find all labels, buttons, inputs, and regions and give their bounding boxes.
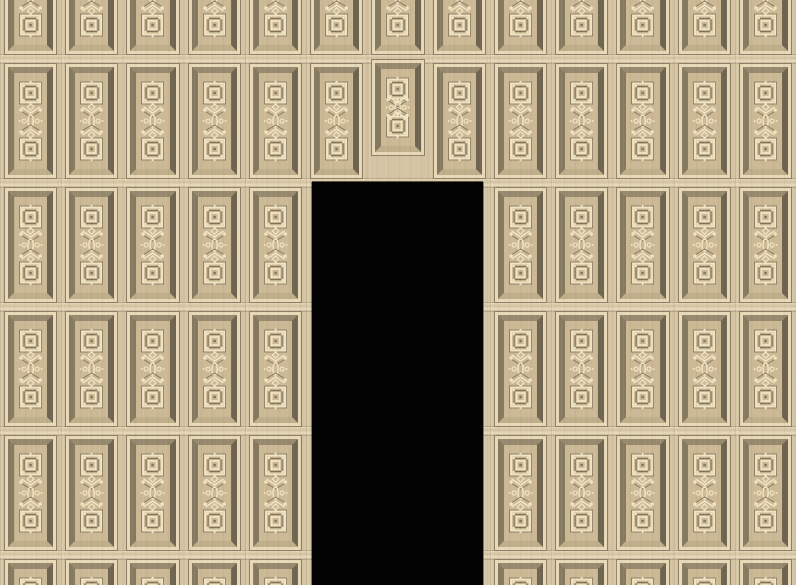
panel-bevel (130, 0, 175, 51)
panel-bevel (8, 563, 53, 585)
panel-bevel (375, 0, 420, 51)
wall-panel (740, 560, 791, 585)
wall-panel (66, 0, 117, 54)
panel-bevel (69, 191, 114, 299)
panel-bevel (559, 67, 604, 175)
panel-bevel (559, 0, 604, 51)
panel-bevel (69, 67, 114, 175)
wall-panel (740, 436, 791, 550)
wall-panel (5, 188, 56, 302)
panel-bevel (130, 439, 175, 547)
panel-bevel (437, 67, 482, 175)
wall-panel (372, 0, 423, 54)
panel-bevel (682, 67, 727, 175)
wall-panel (189, 0, 240, 54)
wall-panel (250, 436, 301, 550)
wall-panel (250, 64, 301, 178)
wall-panel (617, 312, 668, 426)
panel-bevel (253, 0, 298, 51)
wall-panel (127, 0, 178, 54)
wall-panel (556, 0, 607, 54)
panel-bevel (130, 67, 175, 175)
panel-bevel (192, 0, 237, 51)
panel-bevel (8, 315, 53, 423)
wall-panel (679, 436, 730, 550)
wall-panel (5, 312, 56, 426)
panel-bevel (743, 67, 788, 175)
wall-panel (250, 312, 301, 426)
panel-bevel (498, 563, 543, 585)
wall-panel (740, 188, 791, 302)
panel-bevel (743, 315, 788, 423)
panel-bevel (69, 563, 114, 585)
wall-panel (495, 560, 546, 585)
panel-bevel (620, 315, 665, 423)
wall-panel (556, 436, 607, 550)
panel-bevel (130, 191, 175, 299)
wall-panel (617, 188, 668, 302)
panel-bevel (620, 439, 665, 547)
panel-bevel (130, 315, 175, 423)
wall-panel (189, 188, 240, 302)
wall-panel (679, 64, 730, 178)
panel-bevel (743, 439, 788, 547)
wall-panel (617, 560, 668, 585)
panel-bevel (498, 439, 543, 547)
wall-panel (66, 64, 117, 178)
wall-panel (127, 436, 178, 550)
wall-panel (495, 188, 546, 302)
panel-bevel (620, 67, 665, 175)
panel-bevel (437, 0, 482, 51)
wall-panel (556, 64, 607, 178)
panel-bevel (253, 439, 298, 547)
wall-panel (495, 64, 546, 178)
wall-panel (434, 0, 485, 54)
panel-bevel (620, 191, 665, 299)
panel-bevel (130, 563, 175, 585)
panel-bevel (314, 67, 359, 175)
wall-panel (5, 436, 56, 550)
panel-bevel (620, 563, 665, 585)
panel-bevel (69, 315, 114, 423)
wall-panel (5, 0, 56, 54)
wall-panel (679, 188, 730, 302)
wall-panel (679, 0, 730, 54)
wall-panel (189, 560, 240, 585)
panel-bevel (69, 439, 114, 547)
wall-panel (740, 312, 791, 426)
panel-bevel (253, 67, 298, 175)
wall-panel (679, 312, 730, 426)
panel-bevel (192, 439, 237, 547)
wall-panel (250, 0, 301, 54)
wall-panel (66, 560, 117, 585)
panel-bevel (559, 315, 604, 423)
panel-bevel (498, 315, 543, 423)
wall-panel (740, 0, 791, 54)
wall-panel (127, 64, 178, 178)
panel-bevel (8, 67, 53, 175)
panel-bevel (682, 315, 727, 423)
panel-bevel (253, 563, 298, 585)
panel-bevel (253, 315, 298, 423)
wall-panel (617, 64, 668, 178)
wall-panel (66, 436, 117, 550)
wall-panel (127, 312, 178, 426)
wall-panel (372, 60, 423, 155)
wall-panel (189, 436, 240, 550)
panel-bevel (253, 191, 298, 299)
panel-bevel (314, 0, 359, 51)
panel-bevel (498, 0, 543, 51)
panel-bevel (743, 191, 788, 299)
wall-panel (311, 0, 362, 54)
wall-panel (127, 188, 178, 302)
wall-panel (495, 0, 546, 54)
wall-panel (556, 560, 607, 585)
wall-panel (311, 64, 362, 178)
panel-bevel (743, 563, 788, 585)
panel-bevel (682, 563, 727, 585)
wall-panel (189, 64, 240, 178)
panel-bevel (682, 191, 727, 299)
wall-panel (66, 188, 117, 302)
doorway-opening[interactable] (312, 182, 483, 585)
wall-panel (250, 188, 301, 302)
wall-panel (189, 312, 240, 426)
panel-bevel (743, 0, 788, 51)
panel-bevel (8, 439, 53, 547)
panel-bevel (559, 191, 604, 299)
panel-bevel (8, 191, 53, 299)
wall-panel (740, 64, 791, 178)
panel-bevel (192, 67, 237, 175)
wall-panel (66, 312, 117, 426)
wall-panel (556, 312, 607, 426)
wall-panel (495, 312, 546, 426)
wall-panel (127, 560, 178, 585)
panel-bevel (682, 439, 727, 547)
panel-bevel (559, 563, 604, 585)
panel-bevel (69, 0, 114, 51)
wall-panel (5, 560, 56, 585)
wall-panel (617, 0, 668, 54)
wall-panel (617, 436, 668, 550)
wall-panel (250, 560, 301, 585)
panel-bevel (192, 563, 237, 585)
panel-bevel (620, 0, 665, 51)
game-viewport (0, 0, 796, 585)
panel-bevel (8, 0, 53, 51)
panel-bevel (498, 191, 543, 299)
panel-bevel (682, 0, 727, 51)
wall-panel (434, 64, 485, 178)
wall-panel (679, 560, 730, 585)
wall-panel (495, 436, 546, 550)
panel-bevel (559, 439, 604, 547)
panel-bevel (498, 67, 543, 175)
wall-panel (5, 64, 56, 178)
panel-bevel (375, 63, 420, 152)
panel-bevel (192, 191, 237, 299)
wall-panel (556, 188, 607, 302)
panel-bevel (192, 315, 237, 423)
